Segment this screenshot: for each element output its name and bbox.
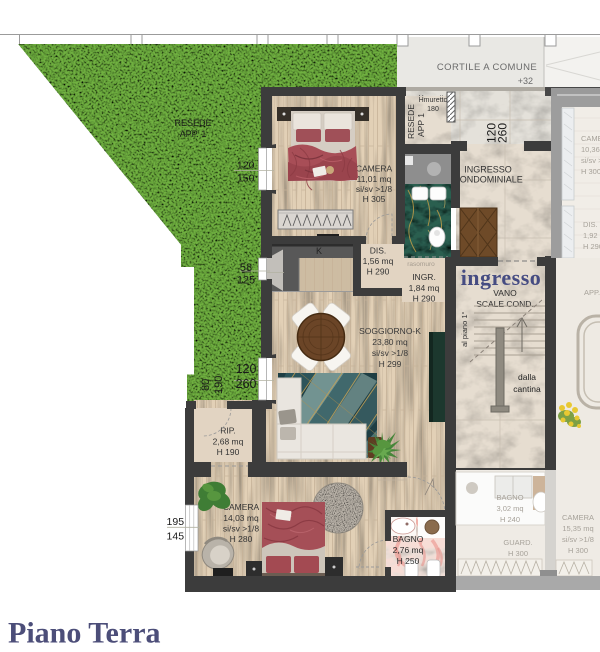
svg-text:si/sv >1/8: si/sv >1/8 [372,348,408,358]
svg-text:10,36 m: 10,36 m [581,145,600,154]
svg-text:H 300: H 300 [508,549,528,558]
svg-text:GUARD.: GUARD. [503,538,532,547]
svg-text:si/sv >1/8: si/sv >1/8 [562,535,594,544]
svg-text:260: 260 [496,123,510,143]
svg-text:APP 1: APP 1 [416,113,426,137]
svg-text:si/sv >1: si/sv >1 [581,156,600,165]
svg-text:260: 260 [236,377,257,391]
svg-text:BAGNO: BAGNO [496,493,523,502]
svg-text:2,76 mq: 2,76 mq [393,545,424,555]
svg-text:dalla: dalla [518,372,536,382]
svg-text:Piano Terra: Piano Terra [8,617,161,650]
svg-text:CAMERA: CAMERA [581,134,600,143]
svg-text:1,92 m: 1,92 m [583,231,600,240]
svg-text:11,01 mq: 11,01 mq [357,174,392,184]
svg-text:si/sv >1/8: si/sv >1/8 [356,184,392,194]
svg-text:H 300: H 300 [581,167,600,176]
svg-text:cantina: cantina [513,384,541,394]
svg-text:2,68 mq: 2,68 mq [213,437,244,447]
svg-text:1,84 mq: 1,84 mq [409,283,440,293]
svg-text:rasomuro: rasomuro [407,261,435,268]
svg-text:1,56 mq: 1,56 mq [363,256,394,266]
svg-text:RESEDE: RESEDE [174,118,211,128]
svg-text:RIP.: RIP. [220,426,235,436]
svg-text:80: 80 [200,379,212,391]
svg-text:H 300: H 300 [568,546,588,555]
svg-text:150: 150 [237,172,255,184]
svg-text:120: 120 [237,160,255,172]
svg-text:190: 190 [213,376,225,394]
svg-text:H 299: H 299 [379,359,402,369]
svg-text:APP. 1: APP. 1 [180,129,207,139]
svg-text:23,80 mq: 23,80 mq [372,337,408,347]
svg-text:H 240: H 240 [500,515,520,524]
svg-text:si/sv >1/8: si/sv >1/8 [223,524,259,534]
svg-text:K: K [316,246,322,256]
svg-text:CAMERA: CAMERA [356,164,393,174]
svg-text:INGRESSO: INGRESSO [464,165,512,175]
svg-text:VANO: VANO [493,288,517,298]
svg-text:195: 195 [167,516,185,528]
svg-text:DIS.: DIS. [370,246,387,256]
svg-text:APP. 2: APP. 2 [584,288,600,297]
svg-text:120: 120 [236,362,257,376]
svg-text:H 190: H 190 [217,447,240,457]
svg-text:CAMERA: CAMERA [562,513,594,522]
svg-text:145: 145 [167,531,185,543]
svg-text:H 280: H 280 [230,534,253,544]
svg-text:125: 125 [237,275,255,287]
svg-text:+32: +32 [518,76,533,86]
svg-text:H 290: H 290 [413,294,436,304]
svg-text:3,02 mq: 3,02 mq [496,504,523,513]
svg-text:BAGNO: BAGNO [393,534,424,544]
svg-text:Hmuretto: Hmuretto [419,97,448,104]
svg-text:H 250: H 250 [397,556,420,566]
svg-text:INGR.: INGR. [412,272,436,282]
svg-text:RESEDE: RESEDE [406,104,416,139]
svg-text:H 305: H 305 [363,194,386,204]
svg-text:180: 180 [427,106,439,113]
svg-text:SCALE COND.: SCALE COND. [476,299,534,309]
svg-text:H 290: H 290 [583,242,600,251]
svg-text:14,03 mq: 14,03 mq [223,513,259,523]
svg-text:H 290: H 290 [367,267,390,277]
svg-text:al piano 1°: al piano 1° [460,311,469,347]
svg-text:ingresso: ingresso [461,265,542,290]
svg-text:15,35 mq: 15,35 mq [562,524,593,533]
svg-text:CORTILE A COMUNE: CORTILE A COMUNE [437,62,537,73]
svg-text:CONDOMINIALE: CONDOMINIALE [453,175,523,185]
svg-text:SOGGIORNO-K: SOGGIORNO-K [359,326,421,336]
svg-text:DIS.: DIS. [583,220,598,229]
